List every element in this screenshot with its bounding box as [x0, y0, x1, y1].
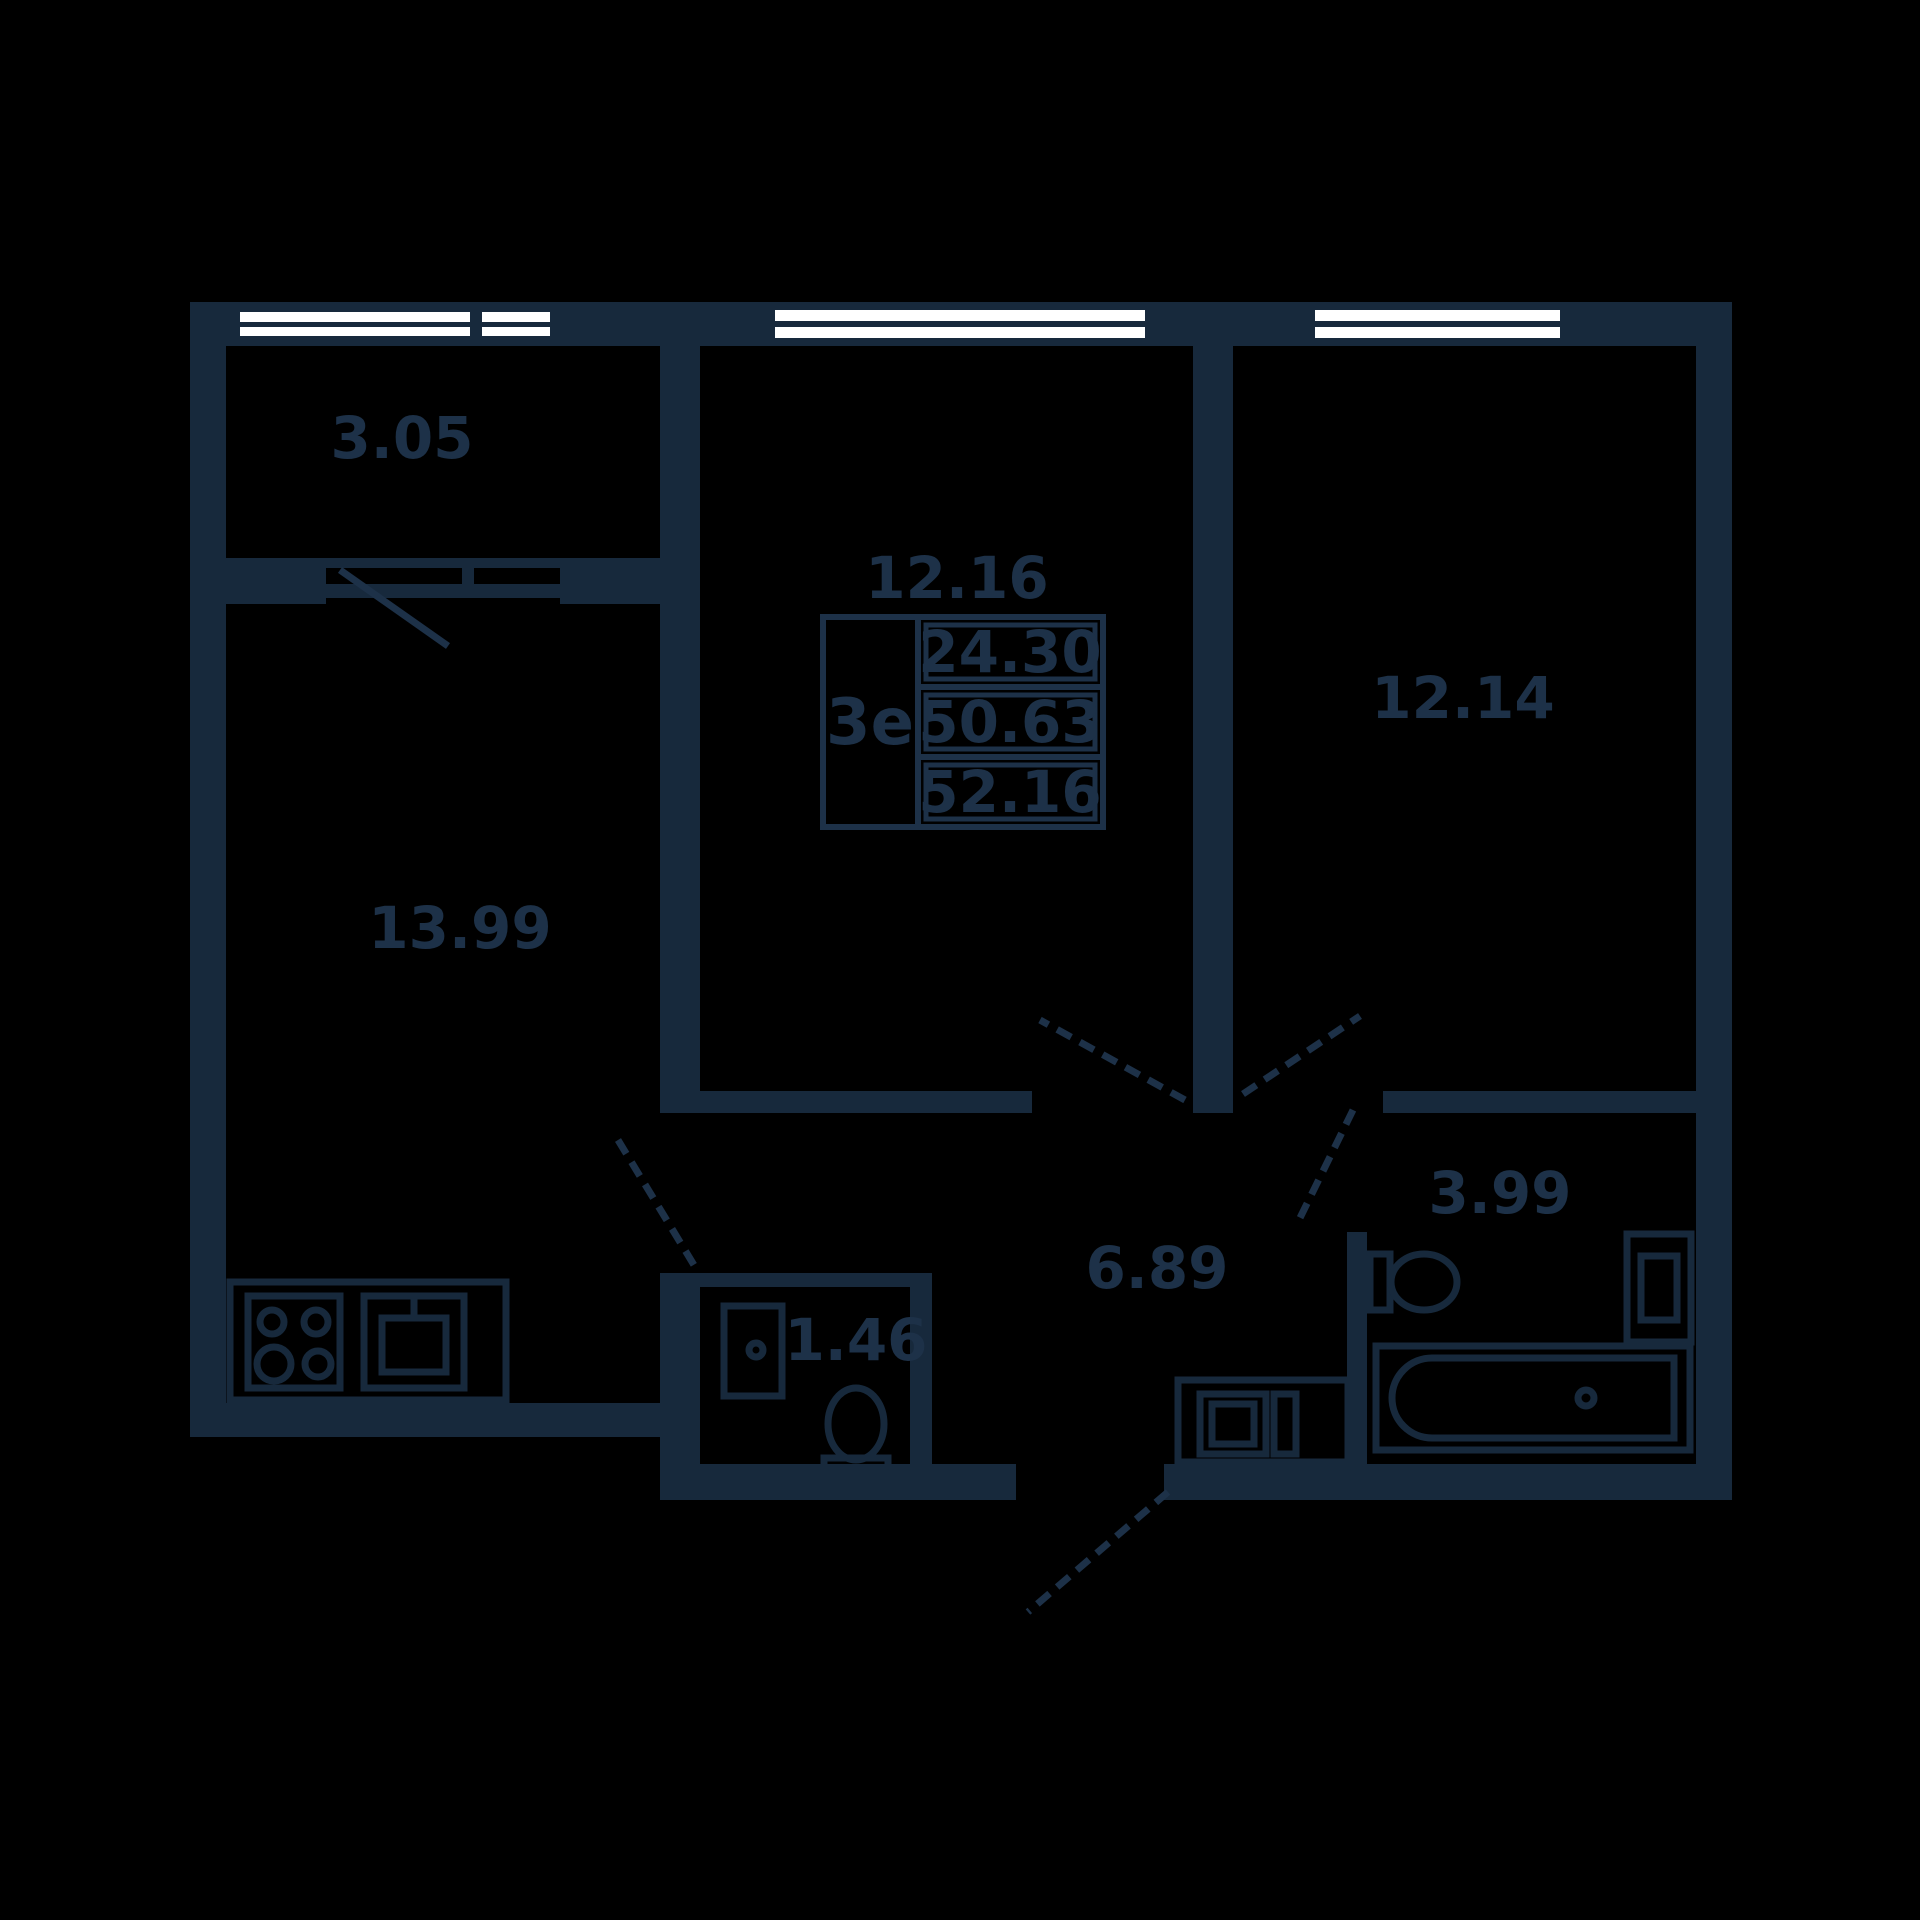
wall-balcony-sill-right: [560, 558, 660, 604]
fixtures: [230, 1234, 1691, 1474]
wall-kitchen-bottom: [190, 1403, 700, 1437]
wall-wc-top: [700, 1273, 932, 1287]
bathroom-fixtures: [1370, 1234, 1691, 1450]
room-labels: 3.05 13.99 12.16 12.14 6.89 3.99 1.46: [330, 404, 1571, 1374]
hallway-area-label: 6.89: [1085, 1234, 1228, 1302]
kitchen-sink-icon: [364, 1296, 464, 1388]
entrance-door-swing: [1028, 1492, 1168, 1612]
wall-partition-bedrooms: [1193, 346, 1233, 1113]
bathroom-door-swing: [1297, 1110, 1353, 1224]
cabinet-icon: [1274, 1394, 1296, 1454]
bedroom2-window-line: [1315, 321, 1560, 327]
wc-area-label: 1.46: [784, 1306, 927, 1374]
balcony-door-leaf: [340, 570, 448, 646]
wall-balcony-sill-left: [226, 558, 326, 604]
balcony-unit-top-bar: [326, 558, 560, 568]
area-info-text: 3е 24.30 50.63 52.16: [826, 618, 1102, 826]
bedroom2-area-label: 12.14: [1371, 664, 1554, 732]
wc-washbasin-icon: [724, 1306, 782, 1396]
balcony-area-label: 3.05: [330, 404, 473, 472]
floor-plan-svg: 3е 24.30 50.63 52.16 3.05 13.99 12.16 12…: [0, 0, 1920, 1920]
wc-toilet-icon: [824, 1388, 888, 1474]
bedroom1-window-line: [775, 321, 1145, 327]
wall-hallway-top-left: [700, 1091, 1032, 1113]
wall-bottom-wc: [660, 1464, 1016, 1500]
bathroom-area-label: 3.99: [1428, 1159, 1571, 1227]
bedroom1-area-label: 12.16: [865, 544, 1048, 612]
bedroom1-door-swing: [1040, 1020, 1185, 1100]
wall-partition-kitchen: [660, 346, 700, 1113]
wall-right-outer: [1696, 302, 1732, 1500]
balcony-unit-divider: [462, 558, 474, 598]
kitchen-area-label: 13.99: [368, 894, 551, 962]
washbasin-icon: [1627, 1234, 1691, 1342]
balcony-glazing-line: [240, 322, 550, 327]
bathtub-icon: [1376, 1346, 1690, 1450]
bedroom2-door-swing: [1243, 1016, 1360, 1094]
apartment-type-label: 3е: [826, 686, 914, 760]
washer-niche: [1178, 1380, 1348, 1462]
living-area-value: 24.30: [918, 618, 1101, 686]
wall-left-outer: [190, 302, 226, 1437]
wall-bathroom-top: [1383, 1091, 1696, 1113]
area-no-balcony-value: 50.63: [918, 688, 1101, 756]
stove-icon: [248, 1296, 340, 1388]
wall-bottom-right: [1164, 1464, 1732, 1500]
kitchen-door-swing: [618, 1140, 697, 1270]
washing-machine-icon: [1200, 1394, 1266, 1454]
toilet-icon: [1370, 1254, 1457, 1310]
total-area-value: 52.16: [918, 758, 1101, 826]
kitchen-counter: [230, 1282, 506, 1400]
balcony-glazing-mullion: [470, 312, 482, 336]
floor-plan-canvas: 3е 24.30 50.63 52.16 3.05 13.99 12.16 12…: [0, 0, 1920, 1920]
